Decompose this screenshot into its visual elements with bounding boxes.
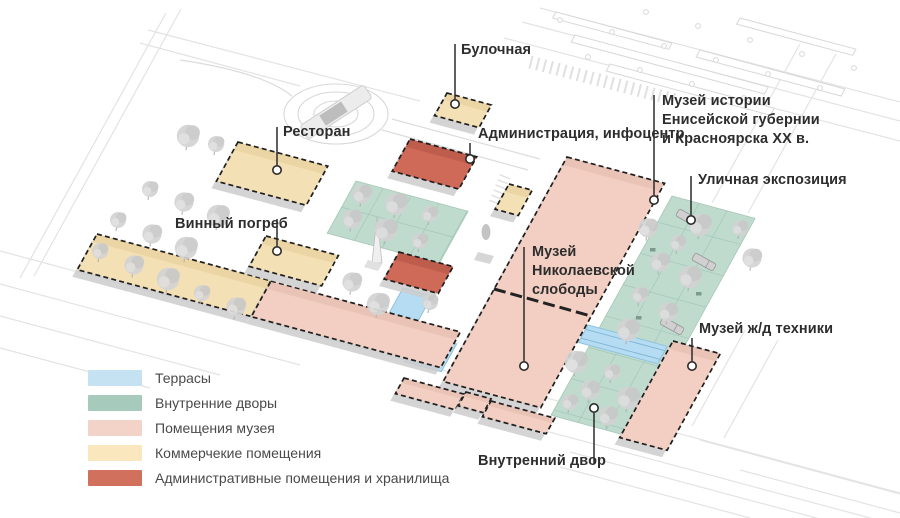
post-icon [714,58,719,63]
history-museum-marker [650,196,658,204]
tree-icon [174,192,194,214]
legend-item-museum: Помещения музея [88,420,449,436]
legend-item-label: Административные помещения и хранилища [155,470,449,486]
legend-item-label: Террасы [155,370,211,386]
tree-icon [177,125,200,150]
bakery-marker [451,100,459,108]
post-icon [696,24,701,29]
tree-icon [207,205,230,230]
bench-icon [696,292,702,296]
post-icon [800,52,805,57]
tree-icon [142,181,158,200]
legend-item-commercial: Коммерчекие помещения [88,445,449,461]
tree-icon [342,272,362,294]
post-icon [742,96,747,101]
legend-item-terraces: Террасы [88,370,449,386]
road-curve [180,60,292,96]
post-icon [644,10,649,15]
statue-base [474,252,494,264]
tree-icon [110,212,126,231]
inner-courtyard-marker [590,404,598,412]
tree-icon [742,248,762,270]
legend-item-label: Помещения музея [155,420,275,436]
post-icon [766,72,771,77]
ground-line [140,43,300,86]
ground-line [740,470,900,513]
admin-swatch [88,470,142,486]
site-plan-diagram: Булочная Ресторан Винный погреб Админист… [0,0,900,518]
commercial-swatch [88,445,142,461]
post-icon [558,18,563,23]
terrace-swatch [88,370,142,386]
statue-icon [482,224,491,240]
post-icon [748,38,753,43]
legend-item-admin: Административные помещения и хранилища [88,470,449,486]
administration-marker [466,155,474,163]
bench-icon [650,248,656,252]
ground-line [724,340,778,438]
street-expo-marker [687,216,695,224]
legend: Террасы Внутренние дворы Помещения музея… [88,370,449,495]
post-icon [852,66,857,71]
ground-line [0,316,220,375]
post-icon [638,68,643,73]
post-icon [610,30,615,35]
bench-icon [636,316,642,320]
legend-item-label: Внутренние дворы [155,395,277,411]
post-icon [818,86,823,91]
tree-icon [208,136,224,155]
tree-icon [142,224,162,246]
post-icon [662,44,667,49]
overpass-icon [300,85,372,140]
courtyard-swatch [88,395,142,411]
nikolaev-museum-marker [520,362,528,370]
railway-museum-marker [688,362,696,370]
legend-item-label: Коммерчекие помещения [155,445,321,461]
restaurant-marker [273,166,281,174]
post-icon [690,82,695,87]
legend-item-courtyards: Внутренние дворы [88,395,449,411]
museum-swatch [88,420,142,436]
ground-line [570,452,850,518]
post-icon [586,55,591,60]
wine-cellar-marker [273,247,281,255]
